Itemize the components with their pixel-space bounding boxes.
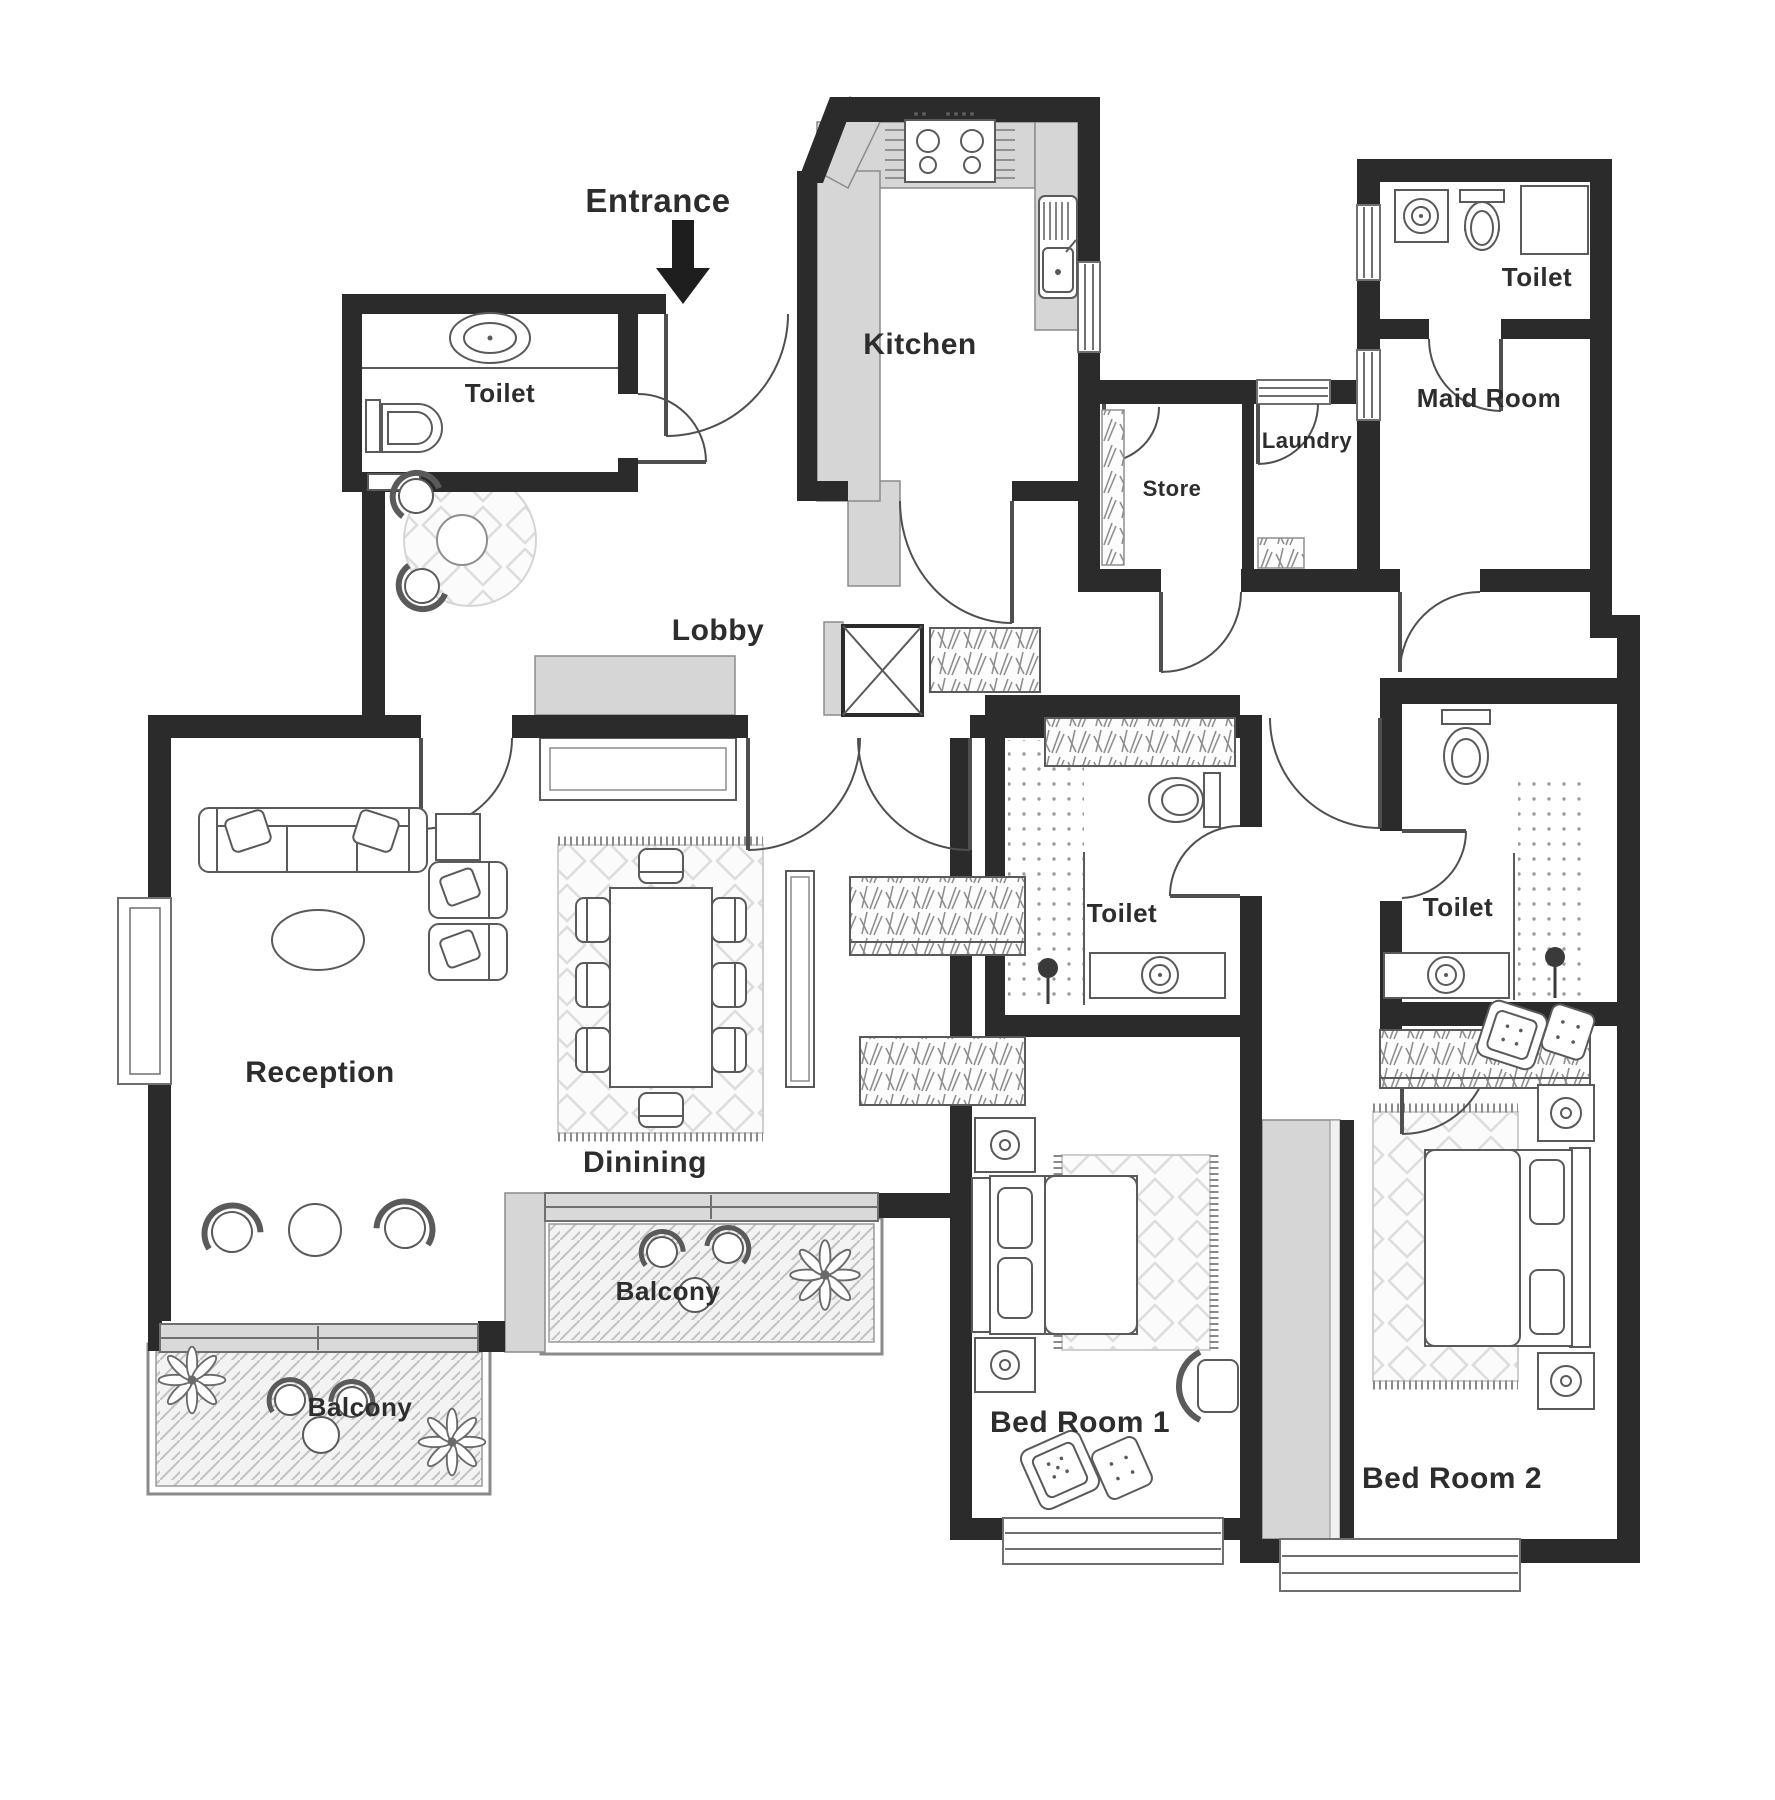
- lounge-chair-icon-2: [372, 1194, 440, 1255]
- br1-desk-chair-icon: [1179, 1352, 1238, 1420]
- maid-toilet-fixtures: [1395, 186, 1588, 254]
- entrance-door: [666, 314, 788, 436]
- stove-icon: [885, 112, 1015, 182]
- entrance-arrow-icon: [656, 220, 710, 304]
- balcony-slider-dining: [545, 1193, 878, 1221]
- kitchen-sink-icon: [1039, 196, 1077, 298]
- dining-chair-icon: [712, 1028, 746, 1072]
- br1-ottoman-icon: [1089, 1434, 1154, 1501]
- window-maid-west-2: [1357, 350, 1380, 420]
- laundry-shelf: [1258, 538, 1304, 568]
- dining-chair-icon: [576, 963, 610, 1007]
- wardrobe-bedroom1-a: [850, 877, 1025, 955]
- br2-wc-icon: [1442, 710, 1490, 784]
- armchair-icon-2: [429, 924, 507, 980]
- room-label-dining: Dinining: [583, 1146, 707, 1179]
- dining-chair-icon: [576, 898, 610, 942]
- wardrobe-hall: [930, 628, 1040, 692]
- wardrobe-bedroom1-b: [860, 1037, 1025, 1105]
- window-west-bay: [118, 898, 171, 1084]
- room-label-kitchen: Kitchen: [863, 328, 977, 361]
- br1-vanity-icon: [1090, 953, 1225, 998]
- dining-table-icon: [610, 888, 712, 1087]
- dining-console: [540, 738, 736, 800]
- bedroom1-toilet-door: [1170, 826, 1240, 896]
- br1-nightstand-icon-1: [975, 1118, 1035, 1172]
- room-label-toilet-maid: Toilet: [1502, 262, 1572, 292]
- room-label-store: Store: [1143, 476, 1202, 501]
- corridor-door: [1270, 718, 1380, 828]
- br1-wc-icon: [1149, 773, 1220, 827]
- maid-sink-icon: [1395, 190, 1448, 242]
- window-bedroom1-south: [1003, 1518, 1223, 1564]
- balcony-table-icon: [303, 1417, 339, 1453]
- bedroom-closet: [1262, 1120, 1340, 1539]
- dining-chair-icon: [712, 898, 746, 942]
- br2-bed-icon: [1425, 1148, 1590, 1347]
- br1-armchair-icon: [1018, 1428, 1102, 1512]
- dining-chair-icon: [576, 1028, 610, 1072]
- side-table-icon: [436, 814, 480, 860]
- bedroom-closet-front: [1330, 1120, 1340, 1539]
- bedroom2-toilet-door: [1402, 831, 1466, 898]
- room-label-bedroom1: Bed Room 1: [990, 1406, 1170, 1439]
- maid-wc-icon: [1460, 190, 1504, 250]
- lobby-console: [535, 656, 735, 715]
- reception-furniture: [197, 808, 507, 1260]
- room-label-bedroom2: Bed Room 2: [1362, 1462, 1542, 1495]
- wardrobe-toilet1-top: [1045, 718, 1235, 766]
- floor-plan-drawing: Entrance Toilet Kitchen Lobby Toilet Mai…: [0, 0, 1775, 1800]
- lounge-chair-icon-1: [197, 1198, 265, 1259]
- dining-chair-icon: [712, 963, 746, 1007]
- dining-furniture: [576, 849, 814, 1127]
- br2-vanity-icon: [1384, 953, 1509, 998]
- shaft-side-panel: [824, 622, 843, 715]
- sofa-icon: [199, 808, 427, 872]
- floor-plan-canvas: Entrance Toilet Kitchen Lobby Toilet Mai…: [0, 0, 1775, 1800]
- hall-double-door: [748, 738, 970, 850]
- room-label-toilet-bedroom2: Toilet: [1423, 892, 1493, 922]
- window-bedroom2-south: [1280, 1539, 1520, 1591]
- balcony-divider-panel: [505, 1193, 545, 1352]
- plant-icon: [790, 1240, 860, 1310]
- room-label-laundry: Laundry: [1262, 428, 1353, 453]
- window-service-north: [1257, 380, 1330, 404]
- br1-nightstand-icon-2: [975, 1338, 1035, 1392]
- room-label-maid-room: Maid Room: [1417, 383, 1562, 413]
- shaft: [843, 626, 922, 715]
- armchair-icon-1: [429, 862, 507, 918]
- toilet-wc-icon: [366, 400, 442, 452]
- room-label-balcony-reception: Balcony: [308, 1392, 413, 1422]
- dining-chair-icon: [639, 849, 683, 883]
- room-label-balcony-dining: Balcony: [616, 1276, 721, 1306]
- guest-toilet-door: [638, 394, 706, 462]
- br2-nightstand-icon-1: [1538, 1085, 1594, 1141]
- service-hall-door: [1161, 592, 1241, 672]
- window-kitchen-east: [1078, 262, 1100, 352]
- room-label-toilet-bedroom1: Toilet: [1087, 898, 1157, 928]
- room-label-reception: Reception: [245, 1056, 395, 1089]
- side-round-table-icon: [289, 1204, 341, 1256]
- entrance-label: Entrance: [585, 182, 730, 219]
- br1-bed-icon: [972, 1176, 1137, 1334]
- window-maid-west-1: [1357, 205, 1380, 280]
- dining-chair-icon: [639, 1093, 683, 1127]
- plant-icon: [159, 1347, 226, 1414]
- maid-room-door: [1400, 592, 1480, 672]
- kitchen-door: [900, 501, 1012, 623]
- balcony-slider-reception: [160, 1324, 478, 1352]
- plant-icon: [419, 1409, 486, 1476]
- sink-oval-icon: [450, 313, 530, 363]
- maid-shower-icon: [1521, 186, 1588, 254]
- dining-cabinet-icon: [786, 871, 814, 1087]
- store-shelving: [1102, 410, 1124, 565]
- br2-nightstand-icon-2: [1538, 1353, 1594, 1409]
- room-label-toilet-guest: Toilet: [465, 378, 535, 408]
- room-label-lobby: Lobby: [672, 614, 765, 647]
- coffee-table-icon: [272, 910, 364, 970]
